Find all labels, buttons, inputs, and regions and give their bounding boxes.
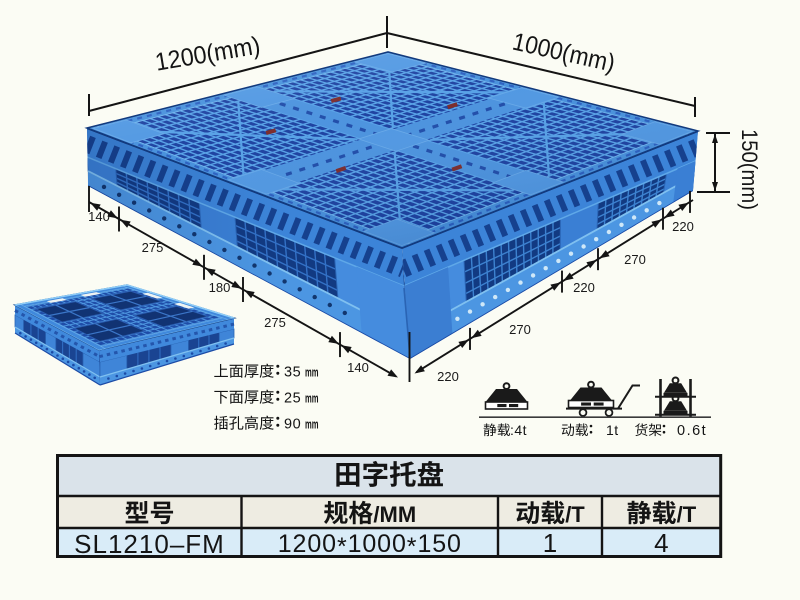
- svg-text:220: 220: [672, 219, 694, 234]
- svg-text::4t: :4t: [510, 422, 527, 438]
- svg-text:/T: /T: [565, 502, 585, 527]
- svg-text:275: 275: [264, 315, 286, 330]
- svg-text:150(mm): 150(mm): [737, 129, 762, 210]
- svg-text:1: 1: [543, 528, 557, 558]
- svg-text:0.6t: 0.6t: [677, 423, 707, 439]
- svg-text:/MM: /MM: [373, 502, 416, 527]
- svg-text:180: 180: [209, 280, 231, 295]
- svg-text:270: 270: [509, 322, 531, 337]
- svg-text:35: 35: [284, 365, 301, 381]
- svg-text:mm: mm: [305, 392, 319, 406]
- svg-text:90: 90: [284, 417, 301, 433]
- svg-text:mm: mm: [305, 418, 319, 432]
- svg-text:220: 220: [437, 369, 459, 384]
- svg-text:140: 140: [88, 209, 110, 224]
- svg-text:220: 220: [573, 280, 595, 295]
- svg-text:1t: 1t: [606, 422, 619, 438]
- svg-text:4: 4: [654, 528, 668, 558]
- svg-text:275: 275: [142, 240, 164, 255]
- svg-text:25: 25: [284, 391, 301, 407]
- svg-text:/T: /T: [677, 502, 697, 527]
- svg-text:mm: mm: [305, 366, 319, 380]
- svg-text:270: 270: [624, 252, 646, 267]
- svg-text:1200*1000*150: 1200*1000*150: [278, 530, 462, 561]
- svg-text:140: 140: [347, 360, 369, 375]
- svg-text:SL1210–FM: SL1210–FM: [74, 529, 225, 559]
